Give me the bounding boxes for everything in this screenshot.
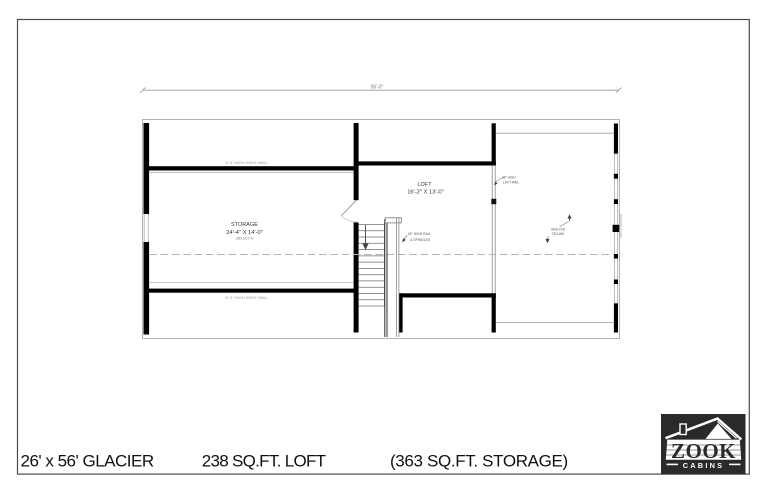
svg-text:5'-0" HIGH KNEE WALL: 5'-0" HIGH KNEE WALL [226,295,270,300]
svg-text:5'-0" HIGH KNEE WALL: 5'-0" HIGH KNEE WALL [226,160,270,165]
svg-text:(363 SQ.FT. STORAGE): (363 SQ.FT. STORAGE) [390,452,568,471]
svg-text:42" HIGH: 42" HIGH [502,176,516,180]
svg-text:238 SQ.FT. LOFT: 238 SQ.FT. LOFT [202,452,326,471]
svg-text:CEILING: CEILING [552,232,565,236]
svg-text:56'-0": 56'-0" [371,85,384,91]
svg-text:16'-2" X 13'-0": 16'-2" X 13'-0" [407,189,444,195]
svg-text:3050 WINDOWS: 3050 WINDOWS [619,214,623,238]
svg-text:24'-4" X 14'-0": 24'-4" X 14'-0" [226,230,263,236]
svg-text:26' x 56' GLACIER: 26' x 56' GLACIER [21,452,154,471]
svg-text:ZOOK: ZOOK [671,439,736,463]
svg-text:VAULTED: VAULTED [551,227,566,231]
svg-text:LOFT: LOFT [417,182,432,188]
svg-text:42" HIGH RAIL: 42" HIGH RAIL [408,232,431,236]
svg-text:LOFT RAIL: LOFT RAIL [503,180,519,184]
svg-text:& SPINDLES: & SPINDLES [410,238,431,242]
svg-text:CABINS: CABINS [683,461,725,470]
svg-text:(363 SQ FT): (363 SQ FT) [236,237,254,241]
svg-text:STORAGE: STORAGE [231,222,258,228]
